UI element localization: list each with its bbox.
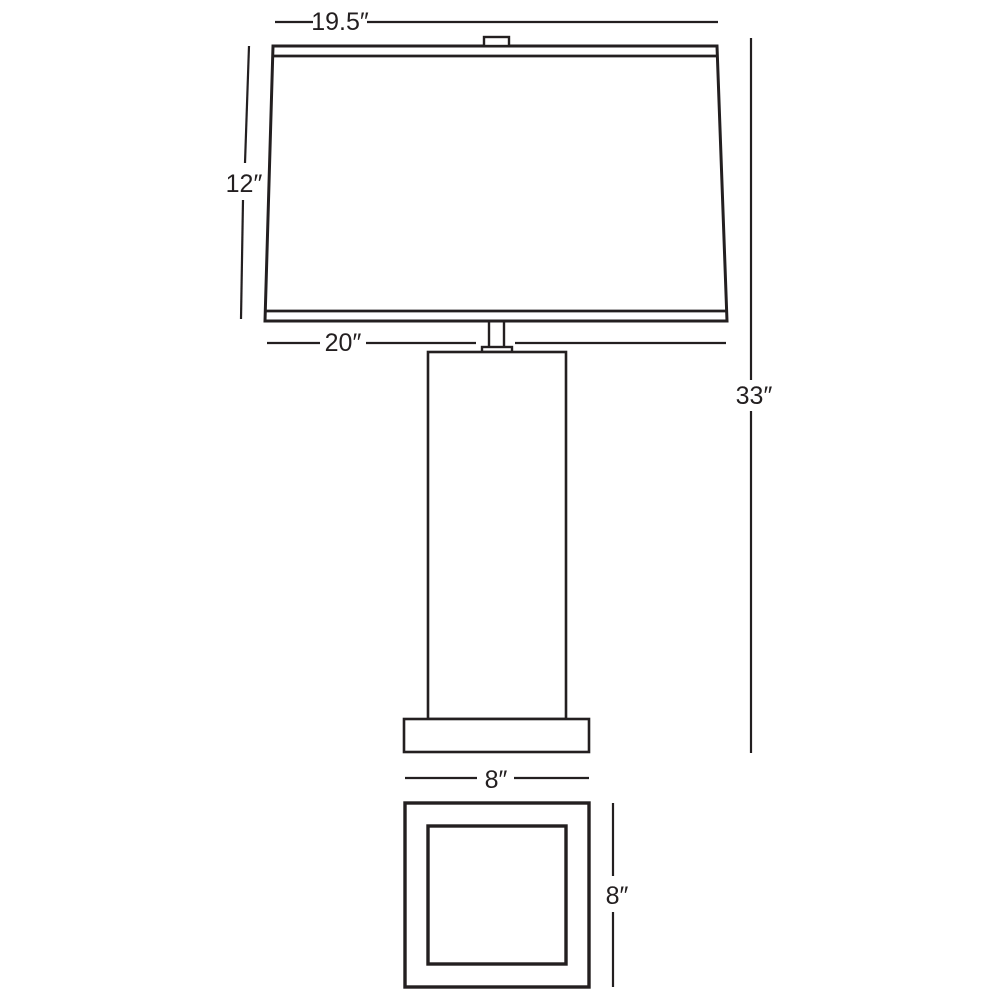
dim-base-depth-label: 8″ [606, 882, 629, 910]
lamp-base [404, 719, 589, 752]
dim-line [245, 46, 249, 163]
dim-base-width-label: 8″ [485, 766, 508, 794]
lamp-body-column [428, 352, 566, 719]
lamp-front-view: 19.5″ 12″ 20″ [226, 8, 773, 794]
diagram-canvas: 19.5″ 12″ 20″ [0, 0, 1000, 1000]
lamp-dimension-diagram: 19.5″ 12″ 20″ [0, 0, 1000, 1000]
base-inner-square [428, 826, 566, 964]
dim-line [241, 200, 243, 319]
dim-shade-top-width: 19.5″ [275, 8, 718, 36]
dim-overall-height: 33″ [736, 38, 773, 753]
lamp-shade-outline [265, 46, 727, 321]
dim-shade-height: 12″ [226, 46, 263, 319]
dim-shade-bottom-width-label: 20″ [325, 329, 362, 357]
base-bottom-view: 8″ [405, 803, 629, 987]
lamp-shade [265, 37, 727, 321]
dim-shade-top-width-label: 19.5″ [311, 8, 369, 36]
dim-base-depth: 8″ [606, 803, 629, 987]
finial [484, 37, 509, 46]
lamp-neck [482, 322, 512, 352]
dim-base-width: 8″ [405, 766, 589, 794]
dim-overall-height-label: 33″ [736, 382, 773, 410]
dim-shade-height-label: 12″ [226, 170, 263, 198]
